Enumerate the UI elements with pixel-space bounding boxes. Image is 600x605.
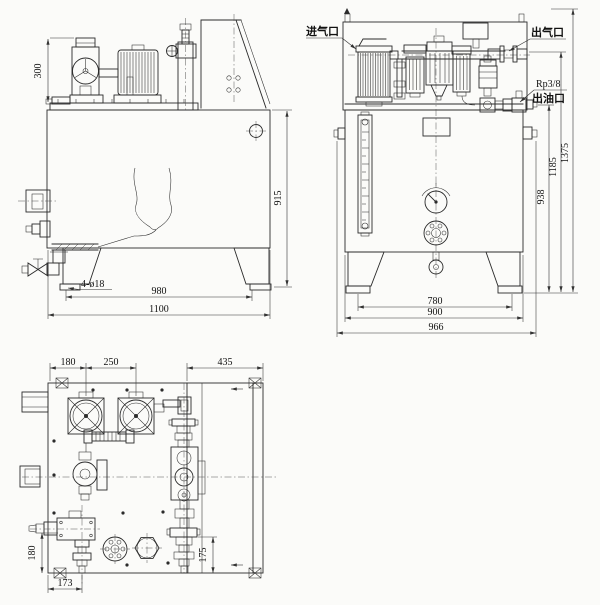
front-view: 进气口 出气口 Rp3/8 出油口 780 900 966 938 1185 1	[306, 8, 578, 337]
plan-motor-2	[118, 392, 154, 434]
label-air-outlet: 出气口	[531, 25, 564, 39]
plan-plates	[22, 383, 277, 573]
corner-screws	[54, 378, 261, 578]
plan-pump	[73, 452, 107, 500]
side-back-panel	[201, 14, 270, 108]
dim-pump-height: 300	[33, 64, 44, 79]
side-left-fittings	[18, 190, 58, 237]
plan-coupling	[84, 430, 134, 452]
plan-left-stubs	[20, 392, 48, 487]
plan-manifold	[154, 383, 205, 573]
coupling	[99, 69, 118, 77]
dim-right-cover-width: 435	[218, 357, 233, 368]
plan-motor-1	[68, 392, 104, 434]
dim-tank-width: 900	[428, 307, 443, 318]
dim-overall-length: 1100	[149, 304, 169, 315]
dim-tank-height: 915	[273, 191, 284, 206]
label-air-inlet: 进气口	[306, 24, 339, 38]
dim-overall-width: 966	[429, 322, 444, 333]
dim-foot-span: 980	[152, 286, 167, 297]
label-mounting-holes: 4-ø18	[81, 279, 104, 290]
label-oil-outlet: 出油口	[532, 91, 565, 105]
side-tank-outline	[47, 99, 270, 248]
filter-bowl-3	[452, 46, 471, 96]
nameplate	[423, 118, 450, 136]
dim-air-outlet-height: 1185	[548, 157, 559, 177]
lifting-hole	[246, 121, 266, 141]
air-inlet-filter	[356, 39, 392, 106]
dim-valve-drop: 180	[27, 546, 38, 561]
plan-view: 180 250 435 180 173 175	[20, 357, 277, 593]
dim-valve-offset: 173	[58, 578, 73, 589]
drawing-svg: 300 915 4-ø18 980 1100	[0, 0, 600, 605]
dim-overall-height: 1375	[560, 143, 571, 163]
technical-drawing-sheet: 300 915 4-ø18 980 1100	[0, 0, 600, 605]
plan-valve-block	[29, 505, 100, 584]
regulator	[479, 56, 497, 96]
dim-motor-spacing: 250	[104, 357, 119, 368]
front-feet	[346, 252, 522, 293]
filter-bowl-1	[404, 45, 426, 97]
dim-manifold-drop: 175	[198, 548, 209, 563]
filter-bowl-2	[426, 36, 453, 100]
dim-edge-to-motor: 180	[61, 357, 76, 368]
label-oil-thread: Rp3/8	[536, 79, 560, 90]
dim-oil-outlet-height: 938	[536, 190, 547, 205]
side-motor	[99, 45, 161, 103]
plan-hex-plug	[132, 533, 162, 563]
dim-front-foot-span: 780	[428, 296, 443, 307]
wall-stubs	[334, 127, 537, 139]
plan-flange	[100, 534, 130, 564]
side-pump	[46, 38, 103, 104]
oil-outlet-piping	[462, 91, 537, 112]
side-view: 300 915 4-ø18 980 1100	[18, 14, 292, 319]
level-gauge	[358, 112, 372, 236]
pressure-switch-box	[463, 23, 488, 48]
side-drain-valve	[22, 250, 68, 276]
suction-pipe-section	[52, 168, 172, 250]
side-riser-valve	[167, 18, 197, 112]
